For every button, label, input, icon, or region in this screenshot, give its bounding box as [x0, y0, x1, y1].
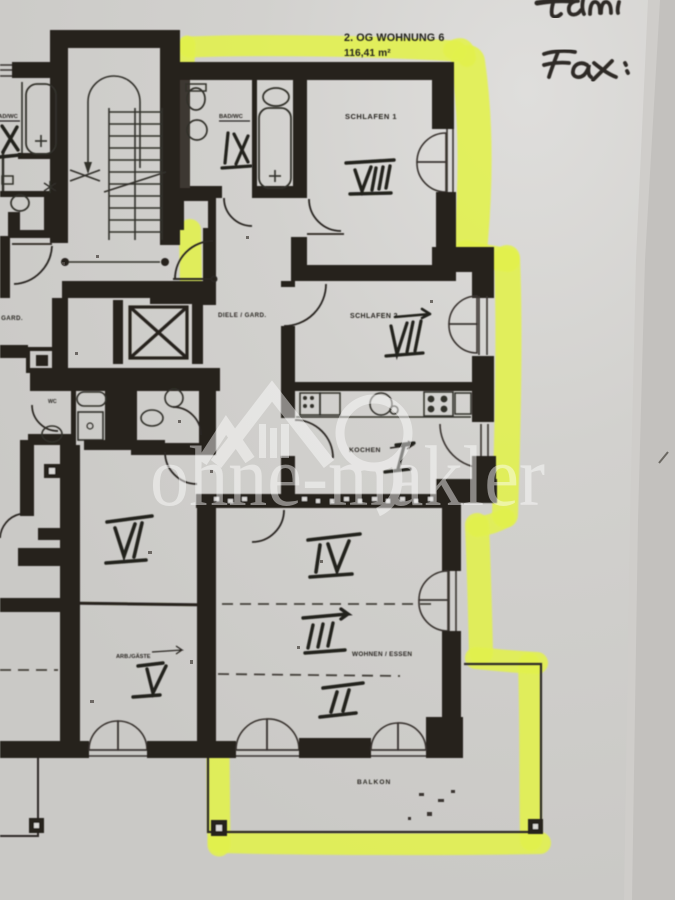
- svg-text:SCHLAFEN 1: SCHLAFEN 1: [345, 112, 397, 121]
- svg-text:BALKON: BALKON: [357, 779, 391, 786]
- svg-text:SCHLAFEN 2: SCHLAFEN 2: [350, 313, 398, 320]
- svg-text:BAD/WC: BAD/WC: [0, 114, 19, 120]
- svg-text:LE / GARD.: LE / GARD.: [0, 315, 23, 322]
- svg-text:116,41 m²: 116,41 m²: [344, 48, 391, 59]
- svg-text:2. OG WOHNUNG 6: 2. OG WOHNUNG 6: [344, 32, 444, 44]
- svg-text:WC: WC: [48, 399, 57, 405]
- svg-text:DIELE / GARD.: DIELE / GARD.: [218, 312, 267, 319]
- svg-text:ARB./GÄSTE: ARB./GÄSTE: [116, 653, 151, 660]
- svg-text:BAD/WC: BAD/WC: [219, 114, 244, 120]
- svg-text:WOHNEN / ESSEN: WOHNEN / ESSEN: [352, 651, 412, 658]
